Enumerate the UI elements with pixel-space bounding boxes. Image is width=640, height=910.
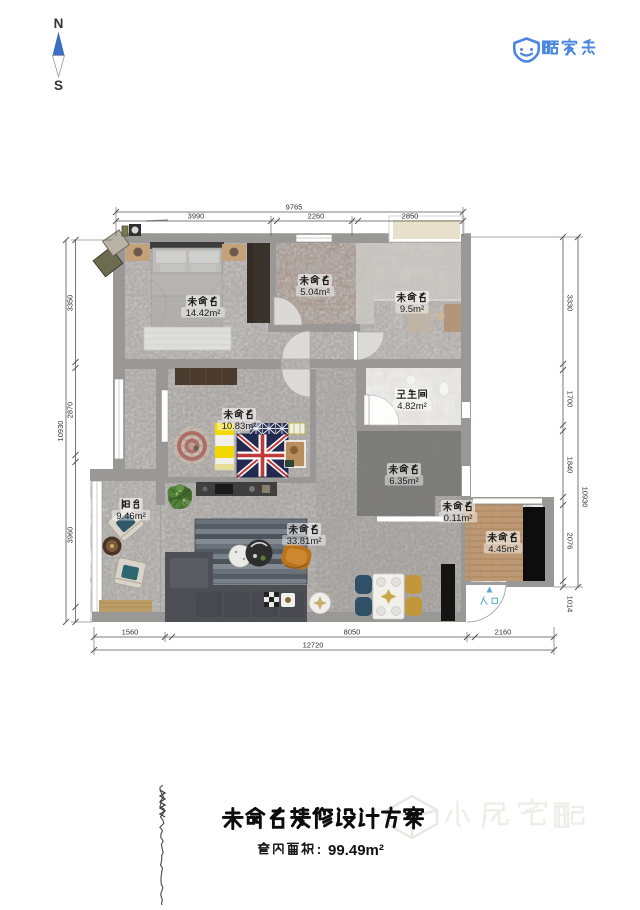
svg-text:2076: 2076 xyxy=(566,533,575,550)
svg-text:9.5m²: 9.5m² xyxy=(400,304,424,315)
svg-text:5.04m²: 5.04m² xyxy=(300,287,330,298)
svg-text:8050: 8050 xyxy=(344,628,361,637)
svg-text::: : xyxy=(317,842,322,857)
svg-text:2160: 2160 xyxy=(495,628,512,637)
svg-text:6.35m²: 6.35m² xyxy=(389,476,419,487)
svg-text:4.45m²: 4.45m² xyxy=(488,544,518,555)
svg-text:9.46m²: 9.46m² xyxy=(116,511,146,522)
svg-text:3350: 3350 xyxy=(66,295,75,312)
svg-text:1840: 1840 xyxy=(566,457,575,474)
svg-text:2870: 2870 xyxy=(66,402,75,419)
svg-text:1700: 1700 xyxy=(566,391,575,408)
svg-text:0.11m²: 0.11m² xyxy=(444,513,473,524)
svg-text:33.81m²: 33.81m² xyxy=(287,536,322,547)
svg-text:10930: 10930 xyxy=(581,487,590,508)
svg-text:12720: 12720 xyxy=(303,641,324,650)
svg-text:1560: 1560 xyxy=(122,628,139,637)
svg-text:4.82m²: 4.82m² xyxy=(397,401,427,412)
svg-text:9765: 9765 xyxy=(286,203,303,212)
svg-text:14.42m²: 14.42m² xyxy=(186,308,221,319)
svg-text:10930: 10930 xyxy=(56,421,65,442)
svg-text:99.49m²: 99.49m² xyxy=(328,842,384,859)
svg-text:1014: 1014 xyxy=(566,596,575,613)
svg-text:10.83m²: 10.83m² xyxy=(222,421,257,432)
svg-text:3330: 3330 xyxy=(566,295,575,312)
svg-text:S: S xyxy=(54,78,63,93)
svg-text:2260: 2260 xyxy=(308,212,325,221)
svg-text:3990: 3990 xyxy=(188,212,205,221)
svg-text:N: N xyxy=(54,16,64,31)
svg-text:3960: 3960 xyxy=(66,527,75,544)
svg-text:2850: 2850 xyxy=(402,212,419,221)
